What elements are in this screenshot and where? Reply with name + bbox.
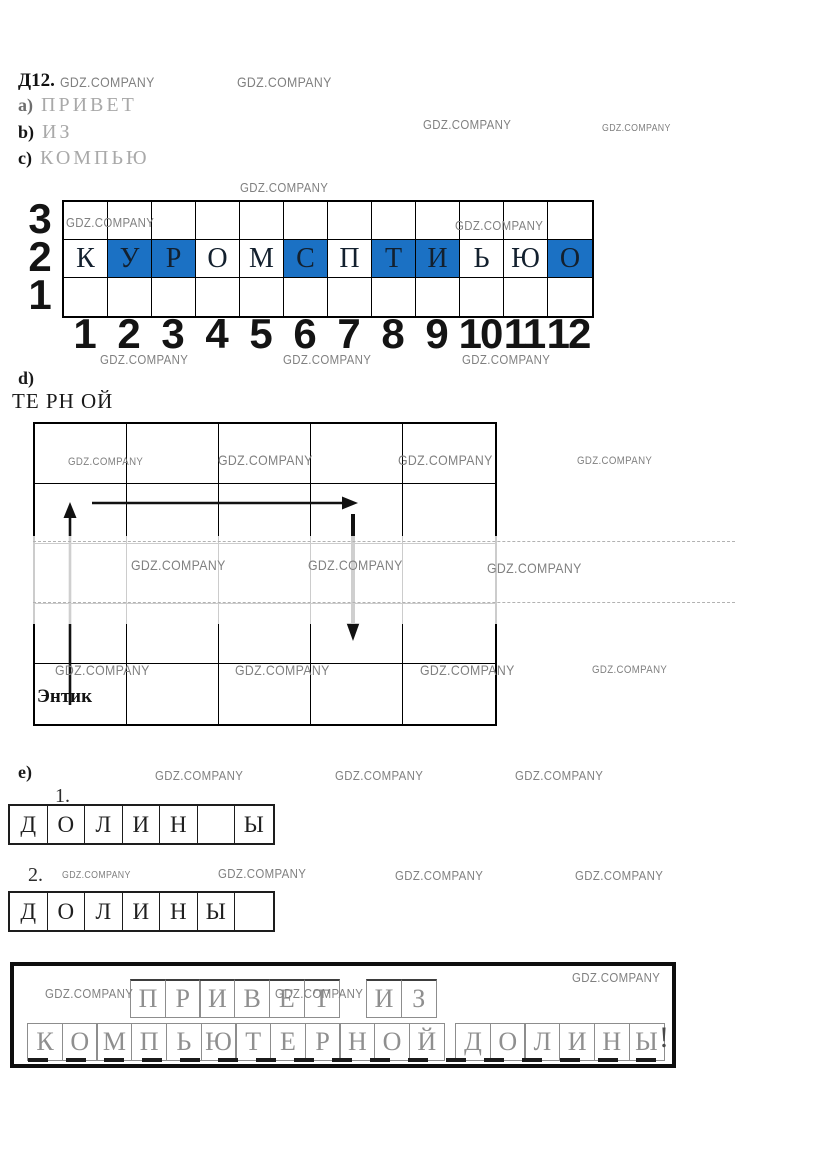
letter-box: Ы (198, 893, 236, 930)
answer-letter-box: О (490, 1023, 526, 1061)
grid-cell (372, 278, 416, 316)
watermark: GDZ.COMPANY (592, 664, 667, 676)
grid-col-label: 1 (62, 314, 106, 354)
grid-col-label: 12 (546, 314, 590, 354)
letter-box: И (123, 893, 161, 930)
grid-cell: Т (372, 240, 416, 278)
letter-box (235, 893, 273, 930)
answer-word-iz: ИЗ (366, 979, 435, 1018)
letter-box: Д (10, 893, 48, 930)
answer-letter-box: М (96, 1023, 132, 1061)
watermark: GDZ.COMPANY (602, 123, 671, 134)
grid-cell: Ь (460, 240, 504, 278)
watermark: GDZ.COMPANY (577, 455, 652, 467)
watermark: GDZ.COMPANY (240, 180, 328, 195)
grid-cell (548, 278, 592, 316)
grid-cell: К (64, 240, 108, 278)
path-grid-cell (403, 664, 495, 724)
answer-box: ПРИВЕТ ИЗ КОМПЬЮТЕРНОЙ ДОЛИНЫ ! (10, 962, 676, 1068)
task-number: Д12. (18, 70, 55, 92)
watermark: GDZ.COMPANY (423, 117, 511, 132)
item-word: ИЗ (42, 121, 72, 144)
answer-letter-box: И (199, 979, 235, 1018)
grid-cell (328, 202, 372, 240)
exercise-item-a: a) ПРИВЕТ (18, 94, 137, 117)
e-row-label-2: 2. (28, 864, 43, 887)
coordinate-grid: КУРОМСПТИЬЮО (62, 200, 594, 318)
grid-col-label: 7 (326, 314, 370, 354)
exercise-item-b: b) ИЗ (18, 121, 72, 144)
answer-letter-box: П (131, 1023, 167, 1061)
grid-cell (416, 202, 460, 240)
grid-cell (152, 202, 196, 240)
grid-cell: П (328, 240, 372, 278)
item-marker: a) (18, 95, 33, 116)
letter-box: Ы (235, 806, 273, 843)
answer-letter-box: Е (270, 1023, 306, 1061)
grid-cell (548, 202, 592, 240)
path-grid-cell (219, 484, 311, 544)
watermark: GDZ.COMPANY (62, 870, 131, 881)
grid-cell (328, 278, 372, 316)
watermark: GDZ.COMPANY (335, 768, 423, 783)
grid-col-label: 2 (106, 314, 150, 354)
grid-cell (504, 202, 548, 240)
grid-cell: О (548, 240, 592, 278)
answer-letter-box: Р (305, 1023, 341, 1061)
grid-col-label: 8 (370, 314, 414, 354)
section-d-answer: ТЕ РН ОЙ (12, 389, 113, 414)
letter-box: Н (160, 806, 198, 843)
grid-row-label: 1 (22, 276, 58, 314)
letter-box: О (48, 893, 86, 930)
item-word: КОМПЬЮ (40, 147, 150, 170)
path-grid-cell (311, 484, 403, 544)
path-grid-cell (127, 664, 219, 724)
answer-letter-box: О (62, 1023, 98, 1061)
watermark: GDZ.COMPANY (155, 768, 243, 783)
answer-word-doliny: ДОЛИНЫ (455, 1023, 663, 1061)
answer-letter-box: З (401, 979, 437, 1018)
answer-letter-box: Т (235, 1023, 271, 1061)
grid-cell (240, 202, 284, 240)
grid-cell (240, 278, 284, 316)
path-grid-cell (403, 424, 495, 484)
grid-col-label: 11 (502, 314, 546, 354)
grid-cell: И (416, 240, 460, 278)
grid-col-label: 4 (194, 314, 238, 354)
path-grid-cell (219, 664, 311, 724)
grid-cell (64, 202, 108, 240)
answer-letter-box: Д (455, 1023, 491, 1061)
answer-letter-box: К (27, 1023, 63, 1061)
erased-area-overlay (28, 536, 734, 624)
answer-letter-box: Е (269, 979, 305, 1018)
grid-cell (64, 278, 108, 316)
letter-boxes-row-2: ДОЛИНЫ (8, 891, 275, 932)
watermark: GDZ.COMPANY (218, 866, 306, 881)
grid-cell: С (284, 240, 328, 278)
answer-letter-box: В (234, 979, 270, 1018)
path-grid-cell (311, 664, 403, 724)
item-marker: b) (18, 122, 34, 143)
worksheet-page: Д12. a) ПРИВЕТ b) ИЗ c) КОМПЬЮ КУРОМСПТИ… (0, 0, 823, 1172)
letter-box: Л (85, 893, 123, 930)
answer-letter-box: О (374, 1023, 410, 1061)
grid-col-labels: 123456789101112 (62, 314, 590, 354)
grid-cell: Ю (504, 240, 548, 278)
watermark: GDZ.COMPANY (60, 74, 155, 90)
grid-col-label: 6 (282, 314, 326, 354)
section-e-marker: e) (18, 762, 32, 783)
watermark: GDZ.COMPANY (237, 74, 332, 90)
answer-letter-box: Л (524, 1023, 560, 1061)
answer-word-privet: ПРИВЕТ (130, 979, 338, 1018)
grid-cell (460, 202, 504, 240)
watermark: GDZ.COMPANY (515, 768, 603, 783)
path-grid-cell (219, 424, 311, 484)
answer-letter-box: Н (594, 1023, 630, 1061)
path-grid-cell (127, 424, 219, 484)
answer-letter-box: Ь (166, 1023, 202, 1061)
answer-letter-box: Т (304, 979, 340, 1018)
path-grid-cell (127, 484, 219, 544)
answer-letter-box: Н (339, 1023, 375, 1061)
grid-caption: Энтик (37, 686, 92, 708)
dashed-underline (28, 1058, 656, 1062)
answer-letter-box: Ю (201, 1023, 237, 1061)
grid-col-label: 9 (414, 314, 458, 354)
grid-cell (196, 278, 240, 316)
grid-col-label: 5 (238, 314, 282, 354)
path-grid-cell (35, 424, 127, 484)
item-word: ПРИВЕТ (41, 94, 137, 117)
grid-cell (152, 278, 196, 316)
letter-box (198, 806, 236, 843)
answer-letter-box: Й (409, 1023, 445, 1061)
faded-grid-line (33, 541, 735, 542)
answer-letter-box: Р (165, 979, 201, 1018)
grid-cell (108, 278, 152, 316)
answer-letter-box: И (366, 979, 402, 1018)
exercise-item-c: c) КОМПЬЮ (18, 147, 150, 170)
grid-col-label: 10 (458, 314, 502, 354)
watermark: GDZ.COMPANY (575, 868, 663, 883)
letter-boxes-row-1: ДОЛИНЫ (8, 804, 275, 845)
grid-cell (460, 278, 504, 316)
letter-box: Л (85, 806, 123, 843)
path-grid-cell (311, 424, 403, 484)
grid-cell: У (108, 240, 152, 278)
grid-col-label: 3 (150, 314, 194, 354)
grid-cell (196, 202, 240, 240)
grid-cell: М (240, 240, 284, 278)
letter-box: Н (160, 893, 198, 930)
path-grid-cell (35, 484, 127, 544)
item-marker: c) (18, 148, 32, 169)
grid-cell (416, 278, 460, 316)
grid-cell: Р (152, 240, 196, 278)
letter-box: Д (10, 806, 48, 843)
answer-letter-box: П (130, 979, 166, 1018)
letter-box: И (123, 806, 161, 843)
faded-grid-line (33, 602, 735, 603)
watermark: GDZ.COMPANY (395, 868, 483, 883)
answer-exclamation: ! (659, 1021, 669, 1055)
grid-cell (504, 278, 548, 316)
grid-cell: О (196, 240, 240, 278)
section-d-marker: d) (18, 368, 34, 389)
answer-word-kompyuternoy: КОМПЬЮТЕРНОЙ (27, 1023, 443, 1061)
letter-box: О (48, 806, 86, 843)
grid-cell (372, 202, 416, 240)
grid-cell (284, 278, 328, 316)
path-grid-cell (403, 484, 495, 544)
answer-letter-box: И (559, 1023, 595, 1061)
grid-cell (108, 202, 152, 240)
grid-cell (284, 202, 328, 240)
